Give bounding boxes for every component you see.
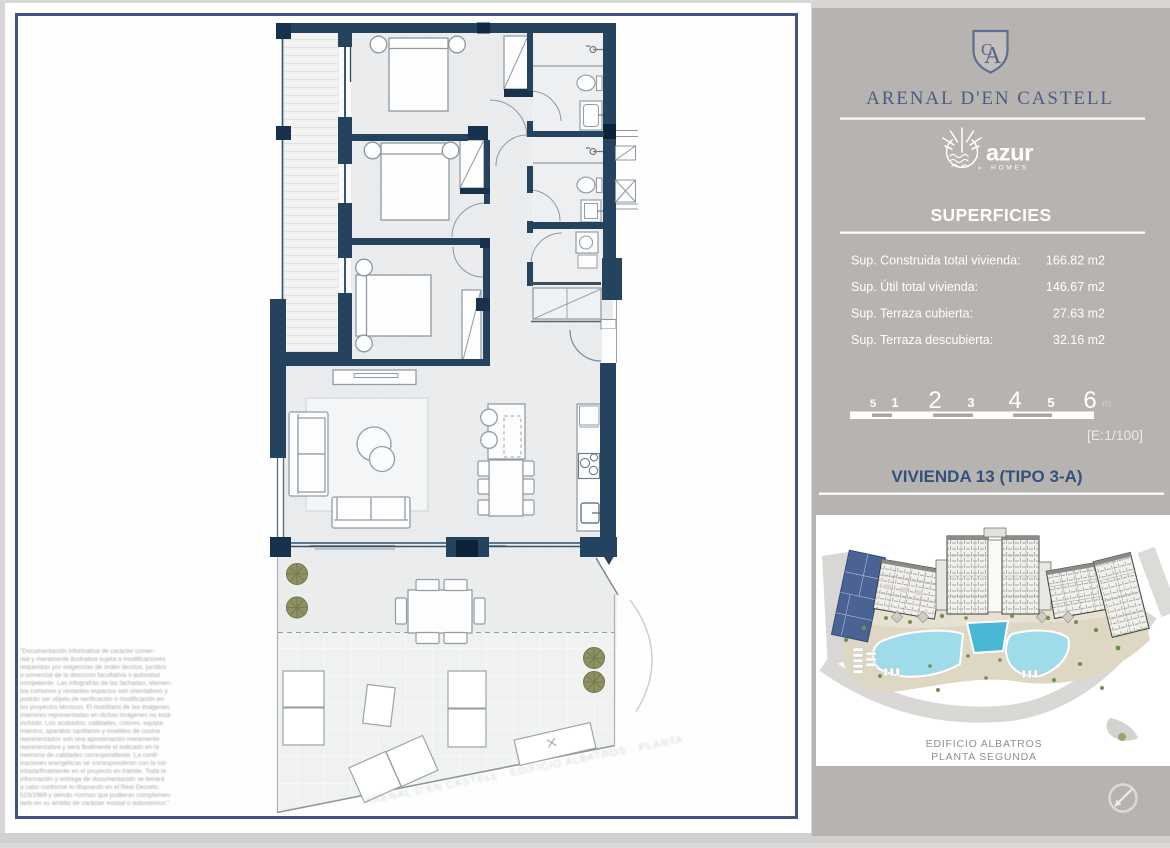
svg-text:EDIFICIO ALBATROS: EDIFICIO ALBATROS xyxy=(926,738,1043,750)
svg-text:tarlo en su ámbito de carácter: tarlo en su ámbito de carácter estatal o… xyxy=(20,800,169,807)
svg-text:m: m xyxy=(1102,398,1111,410)
svg-text:información y entrega de docum: información y entrega de documentación s… xyxy=(20,776,165,783)
svg-text:5: 5 xyxy=(870,398,876,410)
svg-text:Sup. Útil total vivienda:: Sup. Útil total vivienda: xyxy=(851,279,978,294)
svg-text:VIVIENDA 13 (TIPO 3-A): VIVIENDA 13 (TIPO 3-A) xyxy=(891,467,1082,486)
svg-text:interiores representadas en di: interiores representadas en dichas imáge… xyxy=(20,712,171,719)
svg-text:32.16 m2: 32.16 m2 xyxy=(1053,333,1105,347)
svg-text:representados son una aproxima: representados son una aproximación meram… xyxy=(20,736,160,743)
svg-text:icaciones energéticas se corre: icaciones energéticas se corresponderán … xyxy=(20,760,167,767)
svg-text:PLANTA SEGUNDA: PLANTA SEGUNDA xyxy=(931,751,1037,763)
svg-text:incluido. Los acabados, calida: incluido. Los acabados, calidades, color… xyxy=(20,720,165,727)
svg-text:Sup. Construida total vivienda: Sup. Construida total vivienda: xyxy=(851,254,1021,268)
svg-text:1: 1 xyxy=(891,395,898,410)
svg-text:Sup. Terraza descubierta:: Sup. Terraza descubierta: xyxy=(851,333,993,347)
svg-text:competente. Las infografías de: competente. Las infografías de las facha… xyxy=(20,680,172,687)
svg-text:ARENAL D'EN CASTELL: ARENAL D'EN CASTELL xyxy=(866,88,1114,109)
svg-text:4: 4 xyxy=(1008,387,1021,414)
svg-text:mientos, aparatos sanitarios y: mientos, aparatos sanitarios y muebles d… xyxy=(20,728,160,735)
svg-text:tos comunes y restantes espaci: tos comunes y restantes espacios son ori… xyxy=(20,688,169,695)
svg-text:requeridas por exigencias de o: requeridas por exigencias de orden técni… xyxy=(20,664,167,671)
svg-text:a cabo conforme lo dispuesto e: a cabo conforme lo dispuesto en el Real … xyxy=(20,784,159,791)
svg-text:515/1989 y demás normas que pu: 515/1989 y demás normas que pudieran com… xyxy=(20,792,172,799)
svg-text:166.82 m2: 166.82 m2 xyxy=(1046,254,1105,268)
svg-text:cial y meramente ilustrativa s: cial y meramente ilustrativa sujeta a mo… xyxy=(20,656,166,663)
svg-text:2: 2 xyxy=(928,387,941,414)
svg-text:[E:1/100]: [E:1/100] xyxy=(1087,427,1143,443)
svg-text:Sup. Terraza cubierta:: Sup. Terraza cubierta: xyxy=(851,307,973,321)
svg-text:los proyectos técnicos. El mob: los proyectos técnicos. El mobiliario de… xyxy=(20,704,170,711)
svg-text:3: 3 xyxy=(967,395,974,410)
svg-text:SUPERFICIES: SUPERFICIES xyxy=(930,205,1051,225)
svg-text:o comercial de la dirección fa: o comercial de la dirección facultativa … xyxy=(20,672,160,679)
svg-text:azur: azur xyxy=(986,140,1033,166)
svg-text:5: 5 xyxy=(1047,395,1054,410)
svg-text:representativa y será finalmen: representativa y será finalmente el indi… xyxy=(20,744,159,751)
svg-text:"Documentación informativa de: "Documentación informativa de carácter c… xyxy=(20,648,155,655)
svg-text:icitada/finalmente en el proye: icitada/finalmente en el proyecto en trá… xyxy=(20,768,166,775)
svg-text:146.67 m2: 146.67 m2 xyxy=(1046,280,1105,294)
svg-text:A: A xyxy=(984,43,1002,69)
svg-text:memoria de calidades correspon: memoria de calidades correspondiente. La… xyxy=(20,752,159,759)
svg-text:podrán ser objeto de verificac: podrán ser objeto de verificación o modi… xyxy=(20,696,164,703)
svg-text:6: 6 xyxy=(1083,387,1096,414)
svg-text:27.63 m2: 27.63 m2 xyxy=(1053,307,1105,321)
svg-text:HOMES: HOMES xyxy=(991,165,1029,172)
